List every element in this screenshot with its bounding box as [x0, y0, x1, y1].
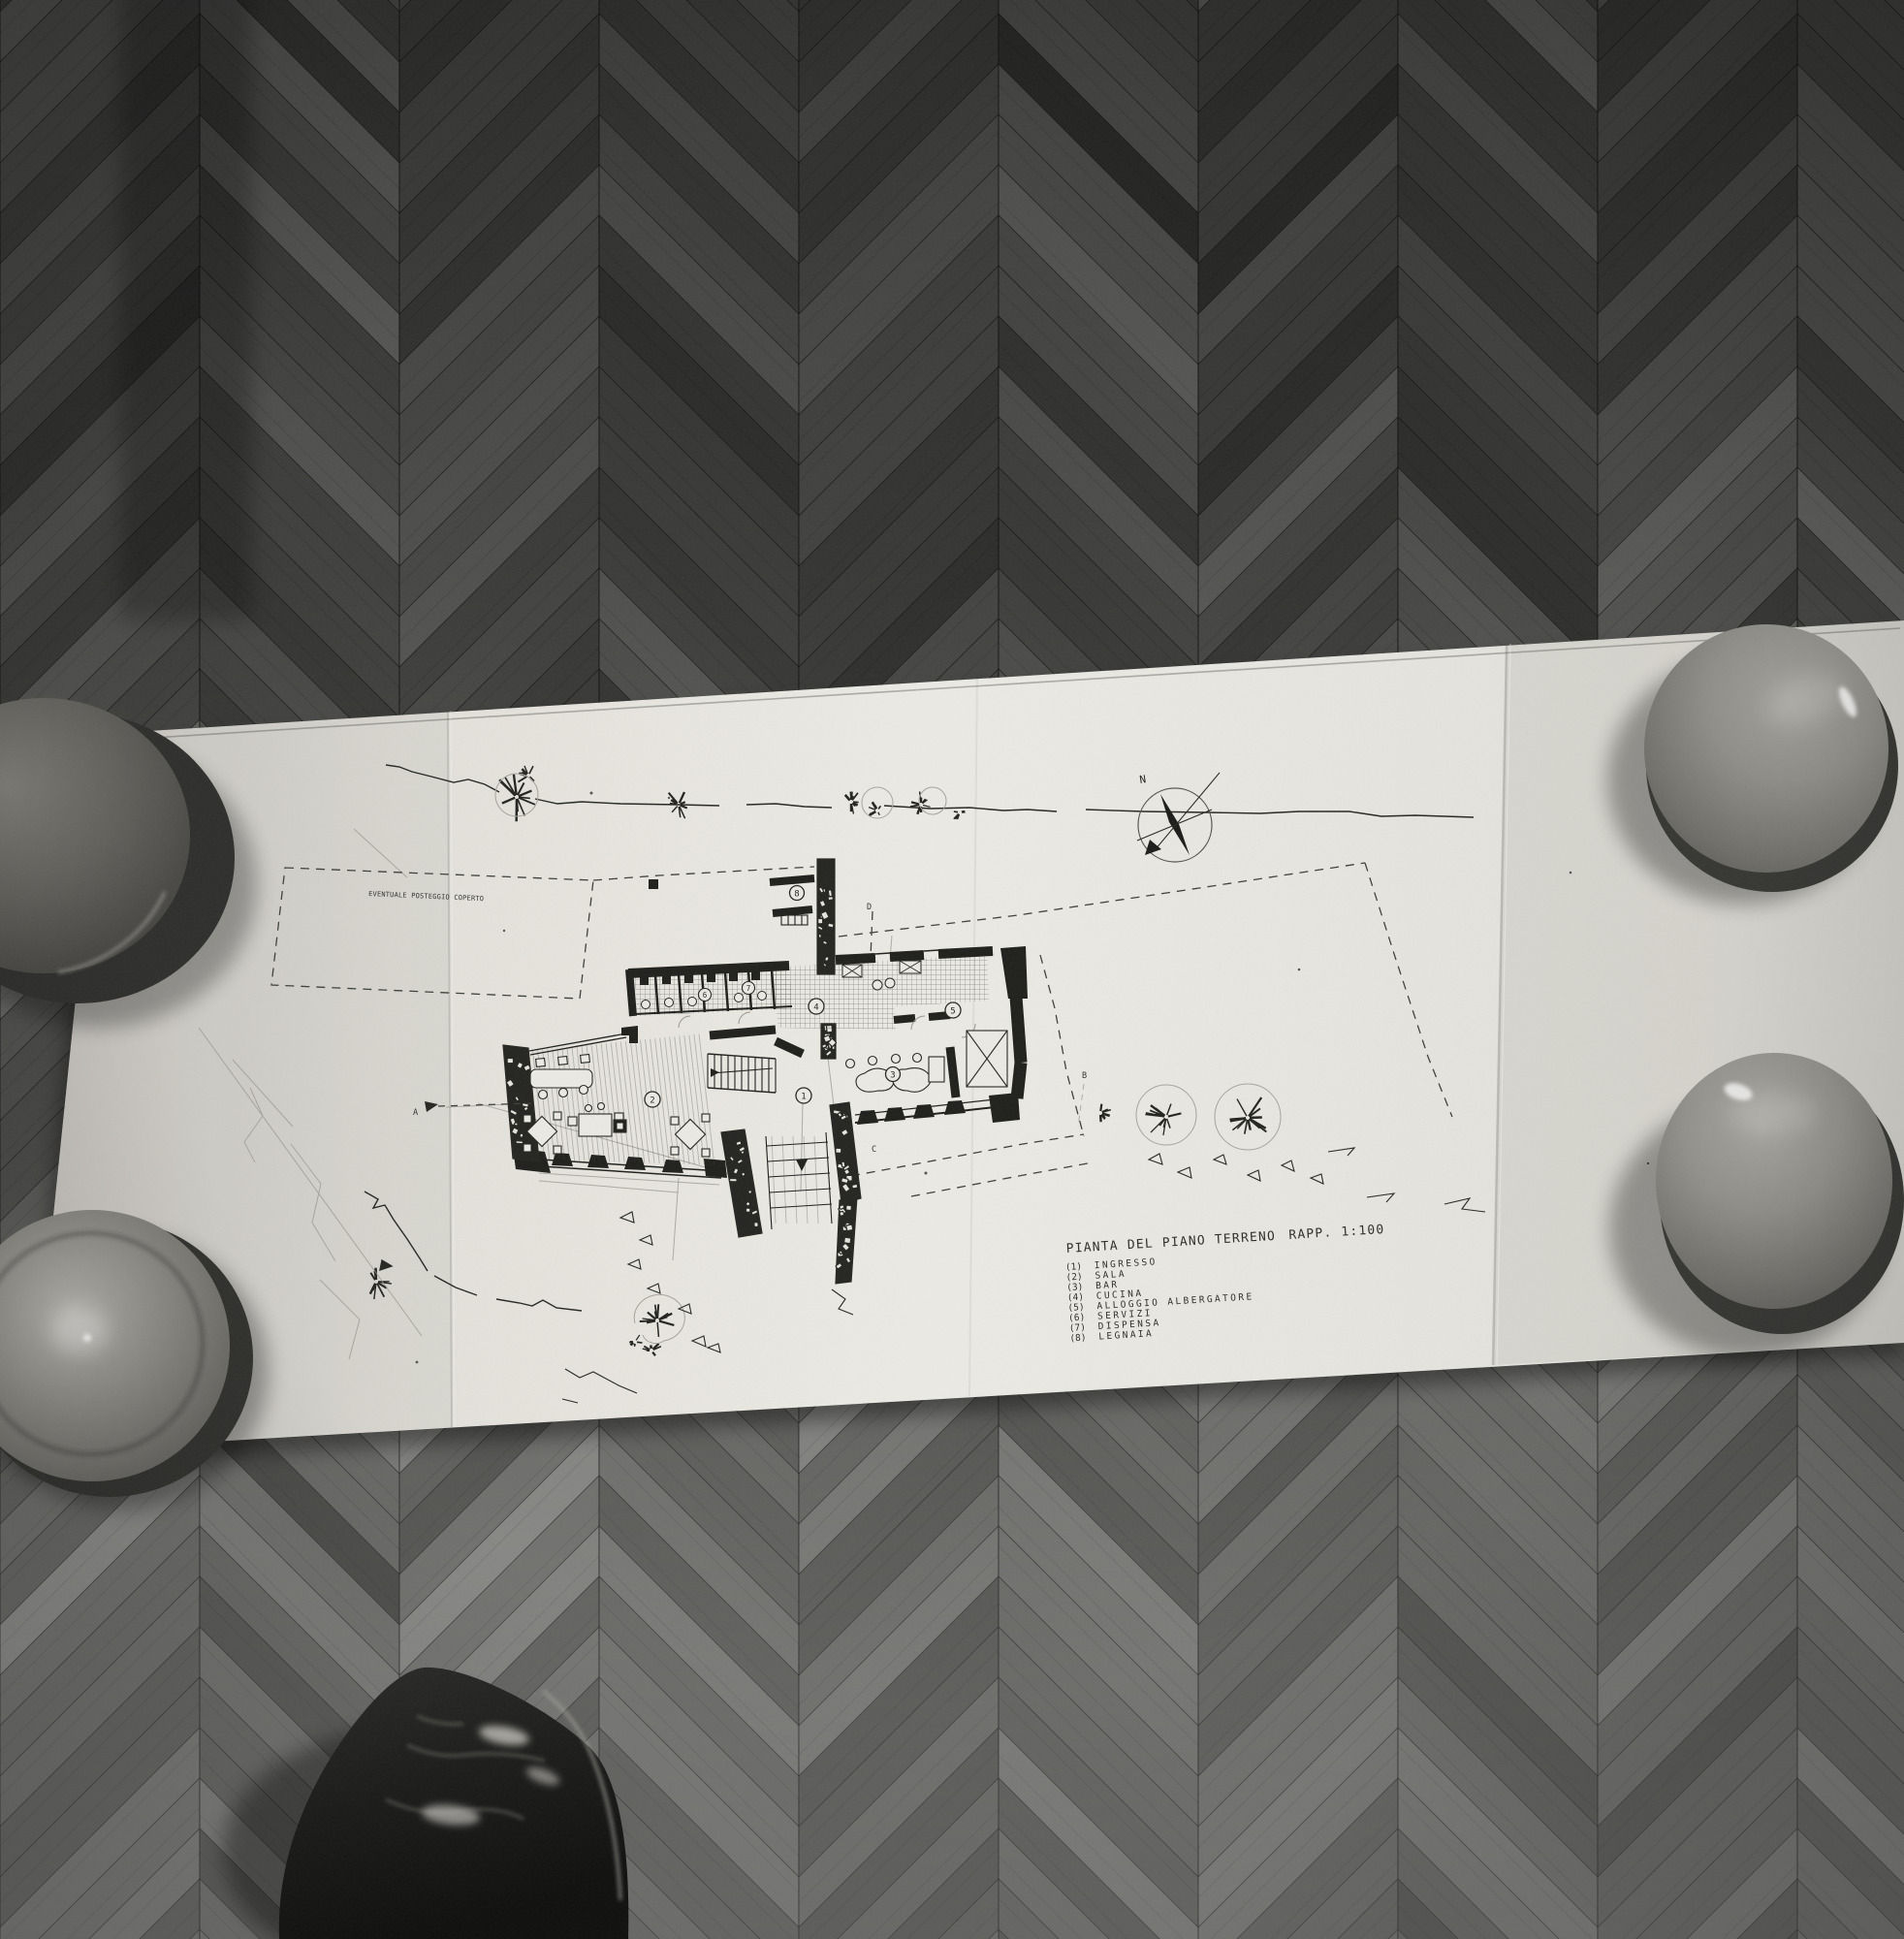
vignette — [0, 0, 1904, 1939]
photograph: 1 2 3 4 5 6 7 8 A B C D — [0, 0, 1904, 1939]
